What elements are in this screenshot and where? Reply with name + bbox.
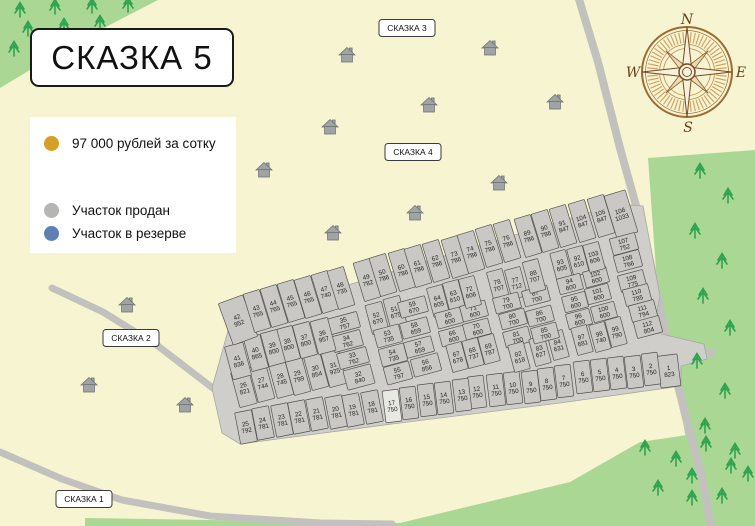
plot-cell[interactable]: 16750 xyxy=(399,386,419,420)
plot-cell[interactable]: 3750 xyxy=(624,355,644,389)
plot-cell[interactable]: 5750 xyxy=(590,358,610,392)
legend-row-sold: Участок продан xyxy=(44,203,170,218)
map-label-text: СКАЗКА 1 xyxy=(64,494,104,504)
plot-cell[interactable]: 17750 xyxy=(382,389,402,423)
map-label-text: СКАЗКА 4 xyxy=(393,147,433,157)
page-title: СКАЗКА 5 xyxy=(30,28,234,87)
legend-sold-label: Участок продан xyxy=(72,203,170,218)
plot-cell[interactable]: 7750 xyxy=(554,364,574,398)
compass-letter-n: N xyxy=(680,12,694,28)
plot-cell[interactable]: 11750 xyxy=(486,373,506,407)
legend-row-price: 97 000 рублей за сотку xyxy=(44,136,216,151)
plot-map-page: 1823275037504750575067507750875097501075… xyxy=(0,0,755,526)
map-label-1: СКАЗКА 1 xyxy=(56,491,112,508)
price-dot-icon xyxy=(44,136,59,151)
compass-letter-s: S xyxy=(683,120,693,136)
compass-letter-e: E xyxy=(735,65,746,81)
map-label-text: СКАЗКА 2 xyxy=(111,333,151,343)
page-title-text: СКАЗКА 5 xyxy=(51,39,212,77)
plot-cell[interactable]: 14750 xyxy=(434,381,454,415)
plot-cell[interactable]: 4750 xyxy=(607,356,627,390)
plot-cell[interactable]: 2750 xyxy=(641,352,661,386)
plot-cell[interactable]: 10750 xyxy=(503,371,523,405)
compass-letter-w: W xyxy=(626,65,642,81)
reserved-dot-icon xyxy=(44,226,59,241)
plot-cell[interactable]: 6750 xyxy=(573,360,593,394)
legend-reserved-label: Участок в резерве xyxy=(72,226,186,241)
legend-row-reserved: Участок в резерве xyxy=(44,226,186,241)
legend-panel: 97 000 рублей за сотку Участок продан Уч… xyxy=(30,117,236,253)
plot-cell[interactable]: 9750 xyxy=(521,370,541,404)
map-label-3: СКАЗКА 3 xyxy=(379,20,435,37)
map-label-4: СКАЗКА 4 xyxy=(385,144,441,161)
plot-cell[interactable]: 15750 xyxy=(417,383,437,417)
map-label-text: СКАЗКА 3 xyxy=(387,23,427,33)
sold-dot-icon xyxy=(44,203,59,218)
legend-price-label: 97 000 рублей за сотку xyxy=(72,136,216,151)
plot-cell[interactable]: 13750 xyxy=(452,378,472,412)
map-label-2: СКАЗКА 2 xyxy=(103,330,159,347)
